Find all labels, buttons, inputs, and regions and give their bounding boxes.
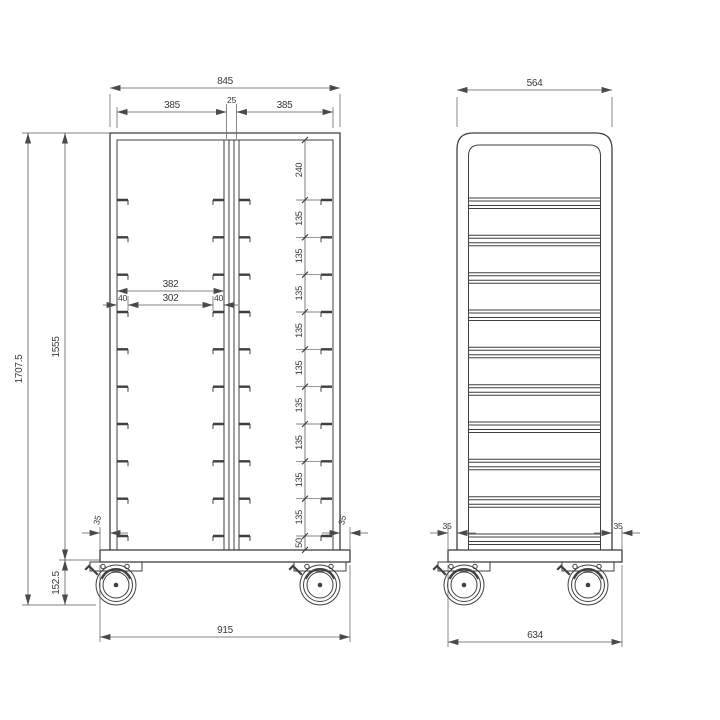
dim-label-base-inset-left-front: 35 <box>91 514 103 526</box>
dim-label-spacing-6: 135 <box>294 398 304 413</box>
dim-label-opening-right: 385 <box>277 100 294 111</box>
side-frame-outer <box>457 133 612 550</box>
dim-label-spacing-3: 135 <box>294 286 304 301</box>
dim-label-spacing-2: 135 <box>294 249 304 264</box>
dim-label-caster-height: 152.5 <box>51 571 62 595</box>
caster-front-right <box>290 564 340 605</box>
dim-label-base-width-front: 915 <box>217 625 234 636</box>
front-center-posts <box>224 140 239 550</box>
side-view: 564 35 35 634 <box>430 78 640 647</box>
front-frame-outer <box>110 133 340 550</box>
dim-label-overall-width-side: 564 <box>527 78 544 89</box>
dim-label-spacing-1: 135 <box>294 211 304 226</box>
drawing-page: 845 385 25 385 1707.5 1555 152.5 382 302… <box>0 0 720 720</box>
dim-label-base-inset-right-side: 35 <box>614 521 623 531</box>
side-rails <box>469 198 600 545</box>
dim-label-spacing-5: 135 <box>294 361 304 376</box>
side-base-plate <box>448 550 622 562</box>
trolley-technical-drawing: 845 385 25 385 1707.5 1555 152.5 382 302… <box>0 0 720 720</box>
front-view: 845 385 25 385 1707.5 1555 152.5 382 302… <box>14 76 368 642</box>
dim-label-rail-hook-right: 40 <box>214 293 223 303</box>
dim-label-spacing-0: 240 <box>294 163 304 178</box>
dim-label-rail-outer-span: 382 <box>163 279 180 290</box>
dim-label-rail-inner-span: 302 <box>163 293 180 304</box>
dim-label-opening-left: 385 <box>164 100 181 111</box>
dim-label-rail-hook-left: 40 <box>118 293 127 303</box>
dim-label-frame-height: 1555 <box>51 336 62 358</box>
dim-label-spacing-9: 135 <box>294 510 304 525</box>
front-frame-inner <box>117 140 333 550</box>
caster-front-left <box>86 564 136 605</box>
dim-label-spacing-10: 50 <box>294 538 304 548</box>
caster-side-right <box>558 564 608 605</box>
dim-label-spacing-4: 135 <box>294 323 304 338</box>
caster-side-left <box>434 564 484 605</box>
dim-label-overall-height: 1707.5 <box>14 354 25 384</box>
dim-label-base-inset-right-front: 35 <box>336 514 348 526</box>
front-base-plate <box>100 550 350 562</box>
dim-label-spacing-7: 135 <box>294 435 304 450</box>
dim-label-center-gap: 25 <box>227 95 236 105</box>
dim-label-spacing-8: 135 <box>294 473 304 488</box>
dim-label-base-width-side: 634 <box>527 630 544 641</box>
dim-label-base-inset-left-side: 35 <box>443 521 452 531</box>
dim-label-overall-width-front: 845 <box>217 76 234 87</box>
